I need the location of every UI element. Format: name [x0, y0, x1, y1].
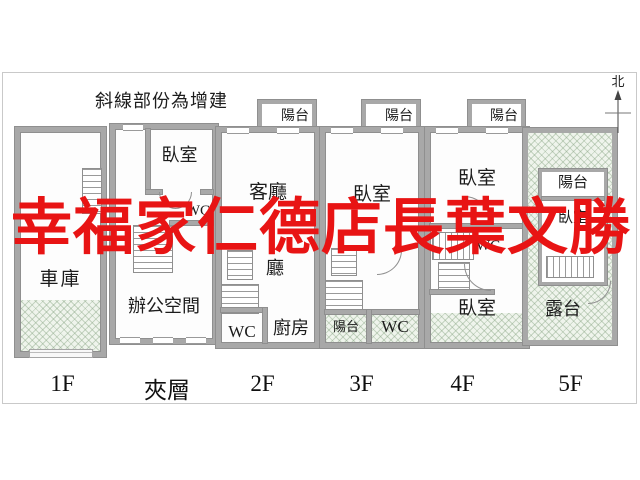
- room-label-bedroom-front: 臥室: [430, 168, 524, 190]
- room-label-balcony-rear: 陽台: [325, 320, 367, 335]
- room-label-bedroom: 臥室: [146, 145, 213, 166]
- window-icon: [486, 127, 508, 134]
- window-icon: [123, 124, 143, 131]
- window-icon: [120, 337, 140, 344]
- room-label-balcony: 陽台: [281, 109, 309, 125]
- window-icon: [186, 337, 206, 344]
- window-icon: [153, 337, 173, 344]
- room-label-garage: 車庫: [20, 269, 101, 291]
- window-icon: [277, 127, 299, 134]
- watermark-text: 幸福家仁德店長葉文勝: [11, 197, 631, 258]
- floor-label-mezz: 夾層: [130, 371, 204, 405]
- room-label-balcony: 陽台: [490, 109, 518, 125]
- window-icon: [331, 127, 353, 134]
- partition-wall: [430, 290, 494, 294]
- room-label-terrace: 露台: [528, 299, 598, 320]
- room-label-wc: WC: [221, 322, 263, 342]
- floorplan-page: 斜線部份為增建 北 車庫 臥室 WC 辦公空間 陽台 客廳 廳: [0, 0, 640, 480]
- addition-hatch-area: [21, 300, 100, 351]
- stairs-icon: [325, 280, 363, 312]
- north-compass-icon: 北: [600, 73, 636, 135]
- floor-label-3f: 3F: [339, 371, 384, 397]
- note-hatched-addition: 斜線部份為增建: [95, 87, 228, 113]
- window-icon: [381, 127, 403, 134]
- window-icon: [436, 127, 458, 134]
- partition-wall: [325, 310, 419, 314]
- room-label-office: 辦公空間: [115, 296, 213, 317]
- room-label-bedroom-rear: 臥室: [430, 298, 524, 320]
- window-icon: [227, 127, 249, 134]
- room-label-balcony: 陽台: [542, 175, 604, 192]
- garage-door-icon: [29, 349, 93, 358]
- floor-label-4f: 4F: [440, 371, 485, 397]
- room-label-wc: WC: [371, 317, 419, 337]
- partition-wall: [221, 308, 267, 312]
- floor-label-2f: 2F: [240, 371, 285, 397]
- room-label-balcony: 陽台: [385, 109, 413, 125]
- floor-label-5f: 5F: [548, 371, 593, 397]
- room-label-dining-room: 廳: [235, 258, 315, 279]
- compass-north-label: 北: [611, 74, 624, 89]
- floor-label-1f: 1F: [40, 371, 85, 397]
- room-label-kitchen: 廚房: [267, 318, 315, 339]
